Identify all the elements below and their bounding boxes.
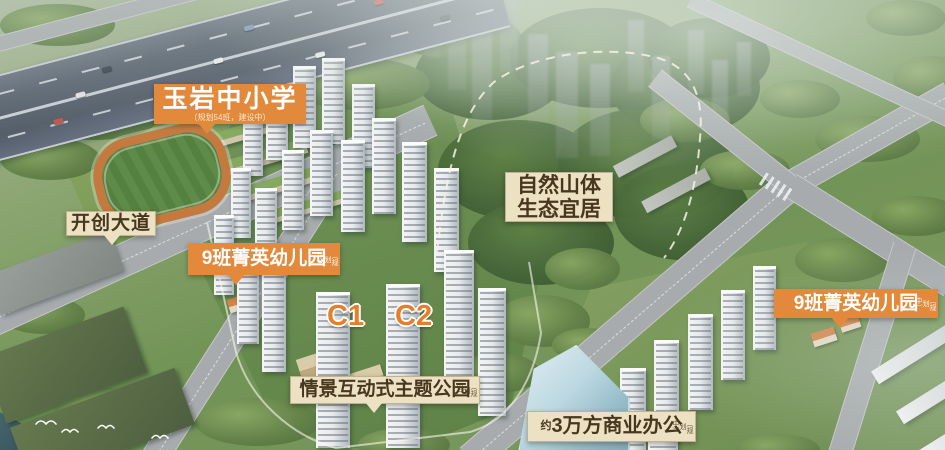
residential-tower [721,290,745,380]
label-kindergarten-left: 9班菁英幼儿园 （规划中） [188,243,340,275]
residential-tower [372,118,396,214]
pointer-arrow-icon [227,274,245,285]
car [373,0,384,6]
distant-tower [628,20,644,92]
pointer-arrow-icon [831,317,849,328]
residential-tower [402,142,427,242]
label-kindergarten-left-note: （规划中） [317,251,338,267]
label-nature-zone: 自然山体 生态宜居 [505,172,613,222]
residential-tower [282,150,304,230]
residential-tower [341,140,365,232]
car [244,24,255,31]
tree-grove [866,0,945,36]
label-kindergarten-right-note: （规划中） [915,296,936,311]
residential-tower [231,168,251,238]
residential-tower [688,314,713,410]
residential-tower [310,130,333,216]
label-kindergarten-left-text: 9班菁英幼儿园 [202,248,327,269]
label-tower-c2: C2 [395,300,432,333]
label-theme-park: 情景互动式主题公园 （规划中） [290,376,480,404]
distant-tower [556,52,578,158]
label-avenue: 开创大道 [66,211,156,236]
label-commercial: 约3万方商业办公 （规划中） [527,411,696,442]
tree-grove [545,248,620,290]
label-commercial-note: （规划中） [672,419,693,434]
residential-tower [262,272,286,372]
distant-tower [737,42,751,96]
label-commercial-prefix: 约 [540,420,551,432]
distant-tower [590,64,610,156]
pointer-arrow-icon [198,123,216,134]
tree-grove [760,80,840,118]
building-slab [896,363,945,424]
residential-tower [753,266,776,350]
label-school-title: 玉岩中小学 [154,84,306,113]
label-nature-line2: 生态宜居 [506,198,612,222]
pointer-arrow-icon [365,402,383,413]
distant-tower [472,26,492,122]
aerial-masterplan-rendering: 玉岩中小学 （规划54班，建设中） 开创大道 9班菁英幼儿园 （规划中） 自然山… [0,0,945,450]
label-nature-line1: 自然山体 [506,174,612,198]
label-kindergarten-right: 9班菁英幼儿园 （规划中） [774,289,938,318]
tree-grove [195,398,320,446]
label-theme-park-text: 情景互动式主题公园 [299,379,470,400]
label-commercial-text: 3万方商业办公 [551,415,682,437]
car [101,66,112,73]
residential-tower [444,250,474,390]
label-tower-c1: C1 [327,300,364,333]
distant-tower [528,34,548,122]
pointer-arrow-icon [103,234,121,245]
label-avenue-text: 开创大道 [71,213,151,234]
label-kindergarten-right-text: 9班菁英幼儿园 [794,293,919,314]
label-school: 玉岩中小学 （规划54班，建设中） [154,84,306,124]
residential-tower [478,288,506,416]
label-school-subtitle: （规划54班，建设中） [154,113,306,124]
label-theme-park-note: （规划中） [456,383,477,397]
distant-tower [688,30,704,94]
car [213,57,224,64]
